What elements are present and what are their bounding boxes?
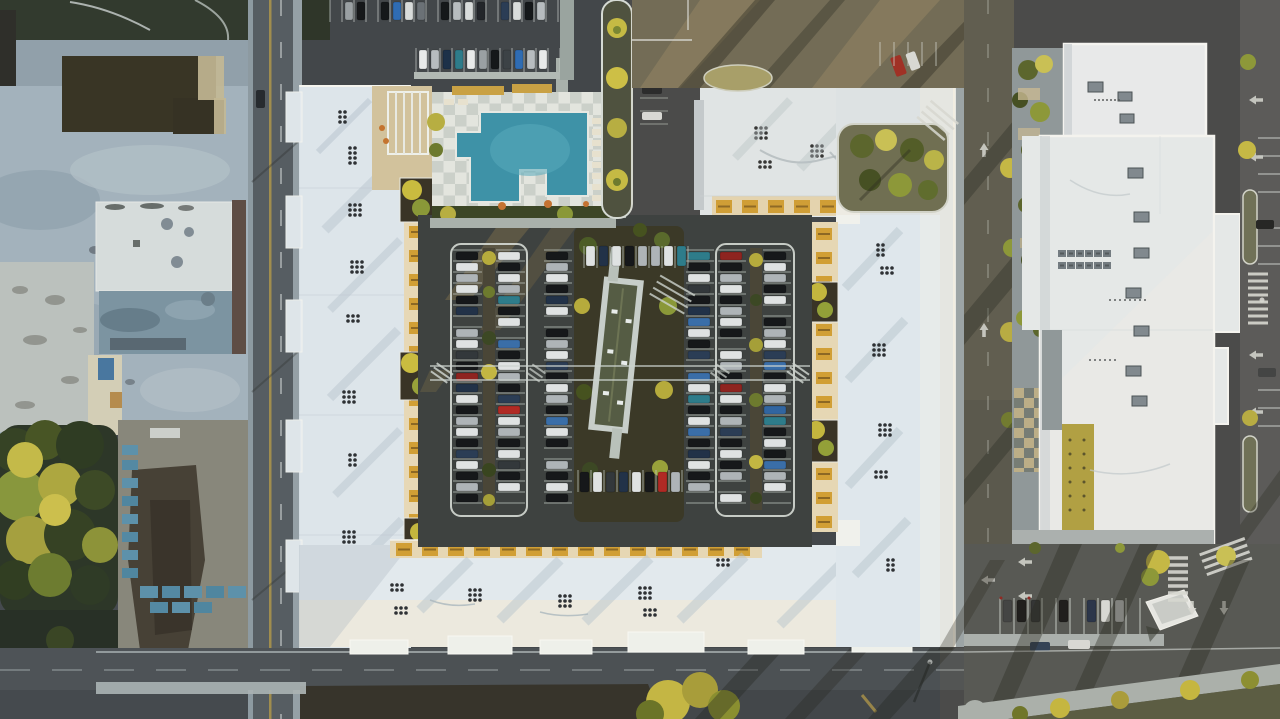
- stair-tower: [836, 520, 860, 546]
- vent-dot: [468, 588, 472, 592]
- pool-deck-checker-cell: [444, 150, 456, 162]
- vent-dot: [881, 253, 885, 257]
- aerial-photo: Aerial top-down photograph of a white sq…: [0, 0, 1280, 719]
- parked-car: [688, 395, 710, 403]
- vent-dot: [348, 151, 352, 155]
- parked-car: [467, 50, 475, 69]
- parked-car: [546, 296, 568, 304]
- pergola-amber: [512, 84, 552, 93]
- parked-car: [527, 50, 535, 69]
- parked-car: [381, 2, 389, 20]
- pool-deck-checker-cell: [455, 196, 467, 208]
- parked-car: [764, 351, 786, 359]
- parked-car: [546, 285, 568, 293]
- parked-car: [498, 461, 520, 469]
- deck-chair: [379, 125, 385, 131]
- parked-car: [688, 329, 710, 337]
- parked-car: [720, 450, 742, 458]
- parked-car: [546, 472, 568, 480]
- vent-cluster: [468, 588, 482, 602]
- umbrella: [583, 201, 589, 207]
- parked-car: [498, 395, 520, 403]
- lounger-row-item: [592, 195, 602, 201]
- parked-car: [764, 428, 786, 436]
- pool-deck-checker-cell: [444, 104, 456, 116]
- vent-dot: [342, 540, 346, 544]
- umbrella: [498, 202, 506, 210]
- island-tree: [483, 286, 495, 298]
- parked-car: [537, 2, 545, 20]
- parked-car: [498, 318, 520, 326]
- parked-car: [688, 252, 710, 260]
- skylight: [611, 309, 617, 314]
- vent-dot: [353, 146, 357, 150]
- pool-deck-checker-cell: [432, 184, 444, 196]
- parked-car: [580, 472, 589, 492]
- wing-bay-south: [540, 640, 592, 654]
- balcony-row-inner: [398, 549, 410, 551]
- vent-dot: [726, 563, 730, 567]
- vent-dot: [399, 611, 403, 615]
- parked-car: [720, 406, 742, 414]
- vent-dot: [351, 314, 355, 318]
- parked-car: [764, 439, 786, 447]
- vent-dot: [346, 314, 350, 318]
- pool-deck-checker-cell: [444, 184, 456, 196]
- parked-car: [658, 472, 667, 492]
- vent-dot: [888, 433, 892, 437]
- parked-car: [612, 246, 621, 266]
- vent-dot: [882, 353, 886, 357]
- parked-car: [456, 384, 478, 392]
- parked-car: [456, 483, 478, 491]
- vent-dot: [885, 271, 889, 275]
- island-tree: [749, 338, 763, 352]
- parked-car: [456, 472, 478, 480]
- vent-dot: [356, 319, 360, 323]
- parked-car: [688, 406, 710, 414]
- vent-dot: [360, 270, 364, 274]
- parked-cars: [456, 252, 478, 502]
- parked-car: [764, 340, 786, 348]
- vent-dot: [653, 613, 657, 617]
- vent-dot: [394, 606, 398, 610]
- vent-dot: [882, 343, 886, 347]
- parked-car: [638, 246, 647, 266]
- parked-car: [764, 406, 786, 414]
- pool-deck-checker-cell: [444, 161, 456, 173]
- vent-dot: [342, 390, 346, 394]
- parked-car: [688, 263, 710, 271]
- vent-dot: [353, 213, 357, 217]
- vent-dot: [882, 348, 886, 352]
- vent-dot: [353, 463, 357, 467]
- vent-dot: [643, 613, 647, 617]
- vent-dot: [353, 203, 357, 207]
- parked-car: [720, 274, 742, 282]
- parked-car: [546, 384, 568, 392]
- vent-dot: [716, 563, 720, 567]
- parked-car: [720, 318, 742, 326]
- parked-car: [479, 50, 487, 69]
- parked-car: [456, 340, 478, 348]
- garden-tree: [576, 384, 592, 400]
- dirt-belowroad: [300, 684, 662, 719]
- lounger-row-item: [592, 162, 602, 168]
- vent-dot: [878, 428, 882, 432]
- pool-deck-checker-cell: [444, 173, 456, 185]
- vent-dot: [342, 400, 346, 404]
- pool-path: [430, 218, 616, 228]
- pool-deck-checker-cell: [432, 196, 444, 208]
- median-palm-core: [613, 178, 621, 186]
- vent-dot: [348, 208, 352, 212]
- parked-car: [357, 2, 365, 20]
- lounger: [444, 99, 454, 105]
- vent-dot: [352, 400, 356, 404]
- parked-car: [664, 246, 673, 266]
- vent-dot: [404, 611, 408, 615]
- parked-car: [546, 417, 568, 425]
- vent-dot: [891, 568, 895, 572]
- pool-deck-checker-cell: [432, 92, 444, 104]
- parked-cars: [546, 252, 568, 502]
- pool-deck-checker-cell: [524, 196, 536, 208]
- balcony-row-inner: [450, 549, 462, 551]
- vent-dot: [643, 596, 647, 600]
- pool-deck-checker-cell: [467, 115, 479, 127]
- vent-dot: [346, 319, 350, 323]
- parked-car: [546, 307, 568, 315]
- vent-dot: [400, 588, 404, 592]
- balcony-row-inner: [658, 549, 670, 551]
- pool-house: [372, 86, 432, 190]
- parked-car: [456, 285, 478, 293]
- parked-car: [498, 428, 520, 436]
- balcony-row-inner: [502, 549, 514, 551]
- balcony-row-inner: [580, 549, 592, 551]
- parked-car: [688, 285, 710, 293]
- parked-car: [651, 246, 660, 266]
- palm: [427, 113, 445, 131]
- parked-car: [688, 274, 710, 282]
- parked-car: [456, 439, 478, 447]
- parked-car: [465, 2, 473, 20]
- vent-dot: [358, 213, 362, 217]
- vent-dot: [348, 453, 352, 457]
- island-planting-strip: [750, 248, 762, 510]
- vent-cluster: [350, 260, 364, 274]
- garden-tree: [574, 298, 590, 314]
- vent-cluster: [872, 343, 886, 357]
- vent-dot: [648, 586, 652, 590]
- parked-car: [498, 274, 520, 282]
- vent-dot: [721, 563, 725, 567]
- vent-dot: [563, 599, 567, 603]
- parked-car: [688, 318, 710, 326]
- parked-car: [720, 461, 742, 469]
- vent-dot: [347, 395, 351, 399]
- vent-dot: [563, 594, 567, 598]
- parked-car: [688, 296, 710, 304]
- island-tree: [750, 492, 762, 504]
- lounger-row-item: [592, 129, 602, 135]
- median-palm-core: [613, 26, 621, 34]
- parked-car: [456, 307, 478, 315]
- skylight: [621, 361, 627, 366]
- wing-bay-south: [448, 636, 512, 654]
- garden-tree: [633, 223, 647, 237]
- vent-dot: [558, 594, 562, 598]
- vent-dot: [558, 604, 562, 608]
- vent-dot: [648, 608, 652, 612]
- vent-dot: [348, 156, 352, 160]
- vent-dot: [890, 271, 894, 275]
- vent-dot: [342, 535, 346, 539]
- terrace-tree: [412, 199, 430, 217]
- parked-car: [593, 472, 602, 492]
- vent-dot: [358, 208, 362, 212]
- parked-car: [456, 417, 478, 425]
- parked-car: [441, 2, 449, 20]
- skylight: [607, 349, 613, 354]
- island-tree: [482, 463, 496, 477]
- parked-car: [498, 450, 520, 458]
- parked-car: [764, 395, 786, 403]
- lounger-row-item: [592, 118, 602, 124]
- vent-dot: [395, 588, 399, 592]
- vent-dot: [353, 156, 357, 160]
- parked-car: [498, 307, 520, 315]
- lounger-row-item: [592, 151, 602, 157]
- vent-dot: [348, 161, 352, 165]
- pool-deck-checker-cell: [455, 104, 467, 116]
- parked-car: [764, 461, 786, 469]
- pool-deck-checker-cell: [570, 92, 582, 104]
- parked-car: [720, 384, 742, 392]
- balcony-row-inner: [818, 473, 830, 475]
- vent-dot: [478, 593, 482, 597]
- vent-dot: [653, 608, 657, 612]
- parked-car: [456, 252, 478, 260]
- balcony-row-inner: [632, 549, 644, 551]
- vent-dot: [338, 115, 342, 119]
- vent-dot: [888, 428, 892, 432]
- parked-car: [498, 384, 520, 392]
- pool-deck-checker-cell: [582, 92, 594, 104]
- parked-car: [764, 472, 786, 480]
- vent-dot: [878, 433, 882, 437]
- parked-car: [764, 417, 786, 425]
- vent-dot: [879, 470, 883, 474]
- vent-dot: [877, 348, 881, 352]
- vent-cluster: [342, 390, 356, 404]
- vent-dot: [356, 314, 360, 318]
- parked-car: [503, 50, 511, 69]
- vent-dot: [891, 558, 895, 562]
- parked-car: [764, 450, 786, 458]
- parked-car: [546, 329, 568, 337]
- parked-car: [720, 263, 742, 271]
- island-tree: [750, 294, 762, 306]
- lounger-row-item: [592, 140, 602, 146]
- parked-car: [393, 2, 401, 20]
- pool-deck-checker-cell: [559, 196, 571, 208]
- island-tree: [749, 253, 763, 267]
- vent-dot: [348, 458, 352, 462]
- parked-car: [546, 274, 568, 282]
- balcony-row-inner: [736, 549, 748, 551]
- vent-cluster: [348, 203, 362, 217]
- parked-car: [688, 417, 710, 425]
- vent-dot: [643, 591, 647, 595]
- parked-car: [546, 351, 568, 359]
- vent-dot: [563, 604, 567, 608]
- vent-dot: [874, 475, 878, 479]
- lounger: [458, 99, 468, 105]
- palm: [429, 143, 443, 157]
- pool-deck-checker-cell: [524, 184, 536, 196]
- skylight: [603, 391, 609, 396]
- vent-dot: [360, 265, 364, 269]
- vent-dot: [478, 598, 482, 602]
- parked-car: [405, 2, 413, 20]
- vent-dot: [343, 120, 347, 124]
- parked-car: [498, 252, 520, 260]
- vent-dot: [876, 243, 880, 247]
- balcony-row-inner: [818, 353, 830, 355]
- pool-deck-checker-cell: [559, 92, 571, 104]
- parked-car: [498, 439, 520, 447]
- pool-deck-checker-cell: [455, 115, 467, 127]
- pool-deck-checker-cell: [455, 184, 467, 196]
- vent-dot: [352, 395, 356, 399]
- wing-bay-south: [748, 640, 804, 654]
- parked-car: [720, 296, 742, 304]
- vent-dot: [347, 530, 351, 534]
- parked-car: [546, 395, 568, 403]
- pool-deck-checker-cell: [455, 161, 467, 173]
- vent-dot: [355, 270, 359, 274]
- pool-deck-checker-cell: [444, 127, 456, 139]
- vent-dot: [881, 243, 885, 247]
- vent-dot: [404, 606, 408, 610]
- vent-dot: [891, 563, 895, 567]
- wing-bay-south: [350, 640, 408, 654]
- parked-car: [456, 450, 478, 458]
- parked-car: [345, 2, 353, 20]
- vent-dot: [638, 586, 642, 590]
- vent-dot: [353, 458, 357, 462]
- vent-dot: [638, 596, 642, 600]
- vent-dot: [348, 463, 352, 467]
- balcony-row-inner: [528, 549, 540, 551]
- vent-dot: [883, 433, 887, 437]
- balcony-row-inner: [554, 549, 566, 551]
- vent-dot: [394, 611, 398, 615]
- vent-dot: [884, 470, 888, 474]
- parked-car: [764, 296, 786, 304]
- balcony-row-inner: [476, 549, 488, 551]
- parked-car: [546, 494, 568, 502]
- parked-car: [431, 50, 439, 69]
- vent-dot: [468, 598, 472, 602]
- vent-dot: [877, 343, 881, 347]
- parked-car: [688, 307, 710, 315]
- parked-car: [477, 2, 485, 20]
- parked-car: [539, 50, 547, 69]
- parked-car: [546, 263, 568, 271]
- parked-car: [456, 395, 478, 403]
- vent-dot: [884, 475, 888, 479]
- vent-dot: [352, 530, 356, 534]
- vent-dot: [338, 120, 342, 124]
- pool-deck-checker-cell: [547, 92, 559, 104]
- terrace-tree: [818, 440, 834, 456]
- vent-dot: [348, 203, 352, 207]
- island-tree: [482, 251, 496, 265]
- parked-car: [456, 494, 478, 502]
- parked-car: [498, 417, 520, 425]
- garden-tree: [655, 381, 673, 399]
- vent-dot: [343, 110, 347, 114]
- parked-car: [586, 246, 595, 266]
- vent-dot: [347, 535, 351, 539]
- parked-car: [546, 406, 568, 414]
- parked-car: [688, 340, 710, 348]
- vent-dot: [353, 151, 357, 155]
- vent-dot: [880, 266, 884, 270]
- parked-car: [720, 307, 742, 315]
- parked-car: [546, 461, 568, 469]
- skylight: [617, 400, 623, 405]
- parked-car: [632, 472, 641, 492]
- vent-dot: [716, 558, 720, 562]
- north-curb: [414, 72, 560, 79]
- vent-dot: [473, 588, 477, 592]
- vent-dot: [726, 558, 730, 562]
- vent-dot: [352, 390, 356, 394]
- parked-car: [546, 340, 568, 348]
- parked-car: [525, 2, 533, 20]
- vent-dot: [872, 348, 876, 352]
- parked-cars: [720, 252, 742, 502]
- parked-car: [720, 417, 742, 425]
- garden-tree: [654, 232, 670, 248]
- parked-car: [619, 472, 628, 492]
- pool-deck-checker-cell: [536, 92, 548, 104]
- vent-dot: [347, 400, 351, 404]
- parked-car: [419, 50, 427, 69]
- balcony-row-inner: [424, 549, 436, 551]
- parked-car: [688, 472, 710, 480]
- pool-highlight: [490, 124, 570, 176]
- vent-dot: [872, 353, 876, 357]
- vent-dot: [886, 568, 890, 572]
- terrace-tree: [402, 180, 422, 200]
- parked-cars: [419, 50, 547, 69]
- lounger-row-item: [592, 173, 602, 179]
- parked-car: [456, 428, 478, 436]
- vent-dot: [643, 586, 647, 590]
- vent-dot: [342, 530, 346, 534]
- parked-car: [453, 2, 461, 20]
- parked-car: [599, 246, 608, 266]
- vent-dot: [648, 591, 652, 595]
- vent-dot: [886, 558, 890, 562]
- vent-dot: [876, 253, 880, 257]
- wing-bay-south: [628, 632, 704, 652]
